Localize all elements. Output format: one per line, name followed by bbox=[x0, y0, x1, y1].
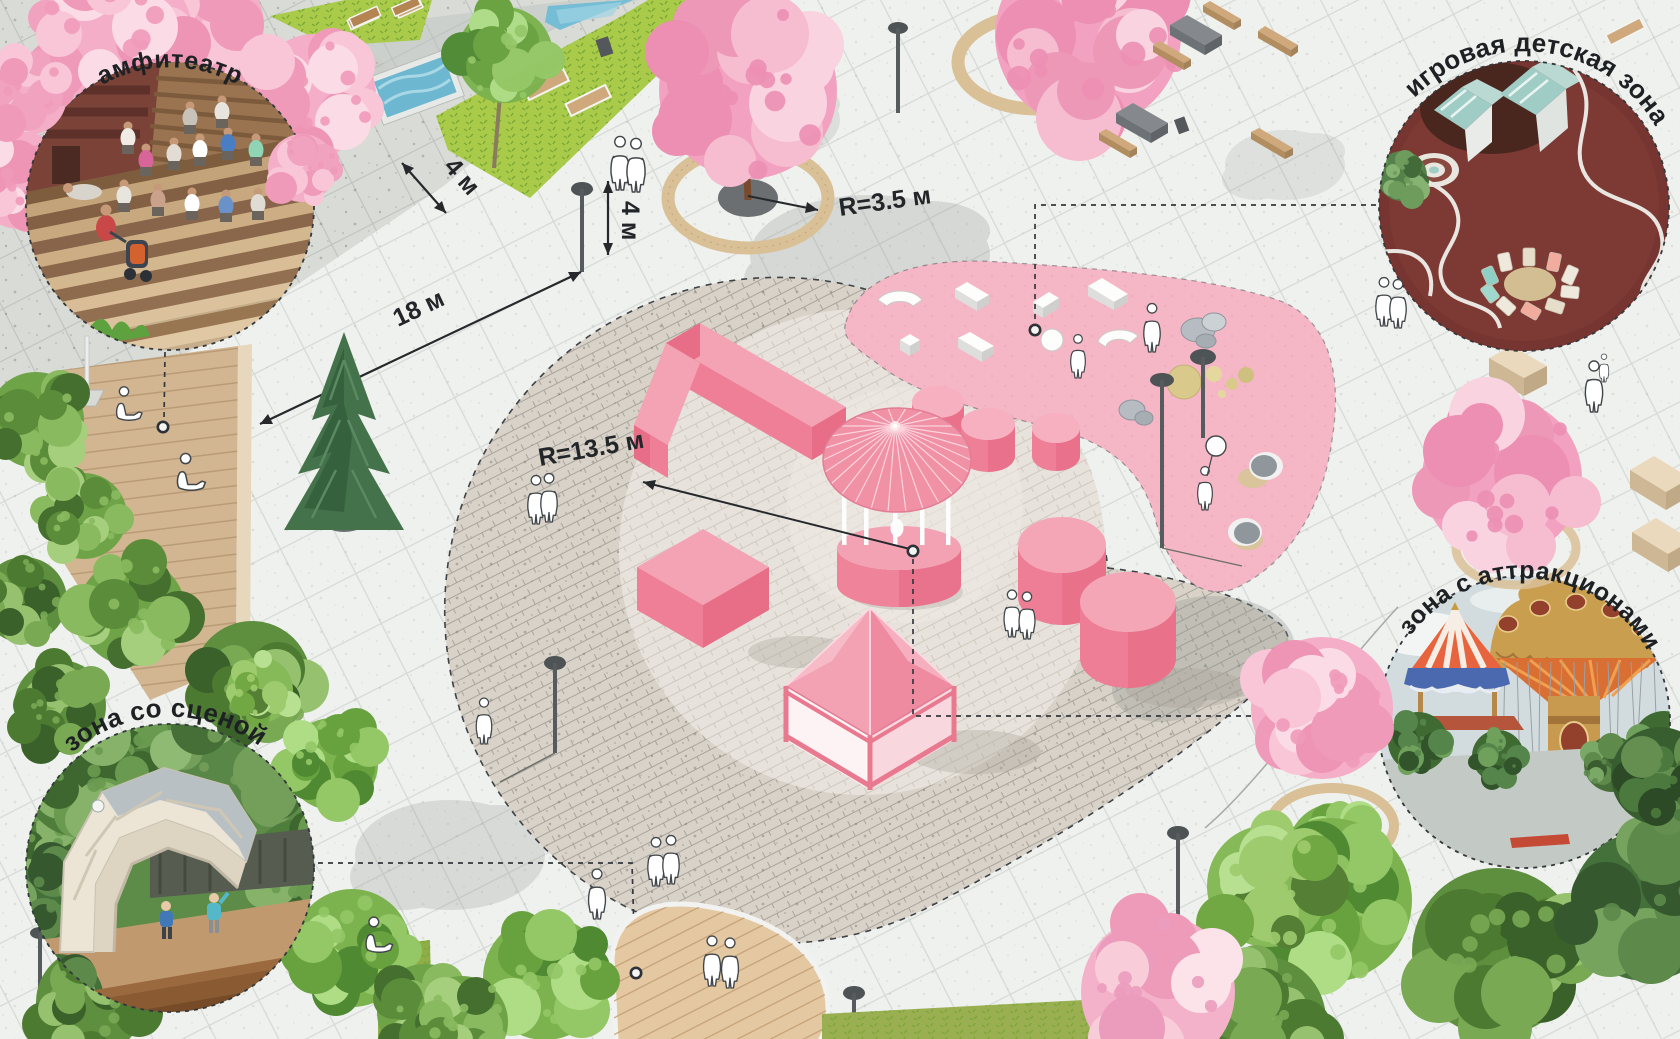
svg-text:4 м: 4 м bbox=[616, 201, 644, 240]
